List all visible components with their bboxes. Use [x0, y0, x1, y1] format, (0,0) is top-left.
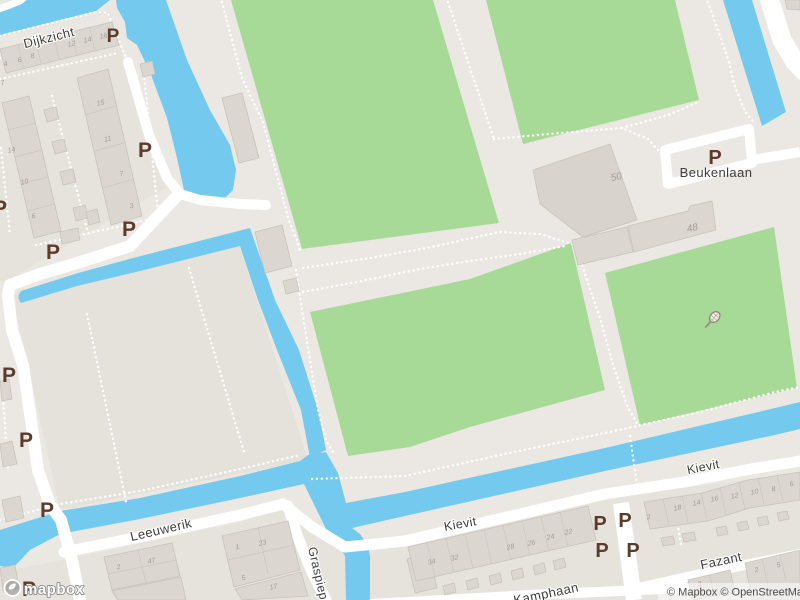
svg-text:Beukenlaan: Beukenlaan [680, 165, 753, 180]
svg-text:P: P [46, 241, 60, 264]
svg-text:P: P [2, 364, 16, 387]
svg-text:P: P [595, 540, 608, 562]
svg-text:mapbox: mapbox [24, 581, 85, 598]
svg-text:P: P [593, 513, 606, 535]
svg-text:P: P [19, 429, 33, 452]
svg-text:P: P [122, 218, 136, 241]
svg-text:P: P [618, 510, 631, 532]
svg-text:P: P [107, 26, 120, 47]
svg-text:P: P [40, 499, 54, 522]
svg-text:P: P [0, 197, 7, 220]
svg-text:P: P [626, 540, 639, 562]
svg-text:© Mapbox © OpenStreetMap: © Mapbox © OpenStreetMap [667, 587, 800, 599]
svg-text:P: P [138, 139, 152, 162]
